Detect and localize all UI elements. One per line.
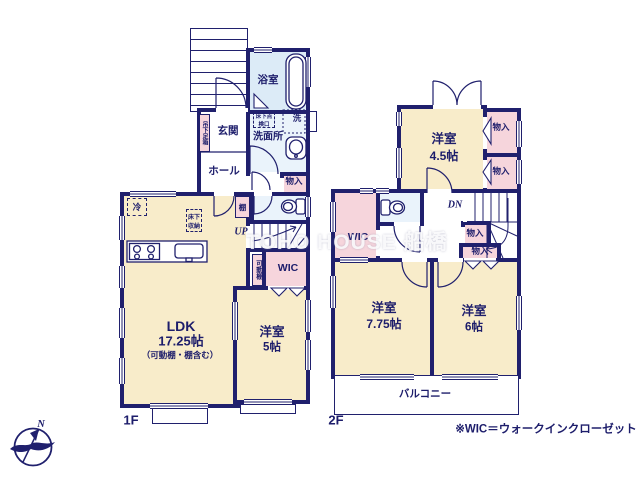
bathtub-inner [289,57,303,106]
compass-icon [10,429,55,466]
label-entrance: 玄関 [218,125,239,137]
closet-b-door-icon [483,160,491,184]
label-ldk-name: LDK [167,318,196,334]
entrance-door-arc [216,78,246,108]
label-wic-note: ※WIC＝ウォークインクローゼット [455,423,637,436]
label-balcony: バルコニー [399,388,451,400]
label-floor-2f: 2F [328,414,343,429]
label-ldk-note: （可動棚・棚含む） [142,351,219,361]
bedroom45-door-arc [427,168,452,193]
label-bedroom6-name: 洋室 [461,304,486,318]
label-bedroom775-name: 洋室 [371,301,396,315]
bath-door-icon [254,94,268,108]
watermark: TOHO HOUSE 船橋 [246,226,448,256]
compass-bird [10,442,55,452]
label-bath: 浴室 [258,74,279,86]
kitchen-tap-icon [186,258,192,262]
label-closet-b: 物入 [492,167,509,177]
closet-a-door-icon [483,118,491,144]
double-door-arcs [433,81,481,105]
label-bedroom45-size: 4.5帖 [430,150,459,164]
label-dn: DN [448,199,462,211]
washbasin-bowl [290,140,303,154]
floor-plan: 吊下足箱 棚 可動棚 冷 床下収納 床下点検口 [0,0,640,480]
label-floor-1f: 1F [123,414,138,429]
toilet-2f-icon [381,200,390,215]
bedroom775-door-arc [402,262,427,287]
washbasin-tap [295,155,298,158]
bedroom6-door-arc [438,262,463,287]
label-washer: 洗 [293,114,302,124]
label-bedroom5-size: 5帖 [263,341,281,354]
label-ldk-size: 17.25帖 [158,335,204,350]
closet-low-door-icon [465,261,481,269]
label-hall: ホール [208,165,240,177]
toilet-1f-icon [296,199,305,214]
label-bedroom6-size: 6帖 [465,321,483,334]
washroom-door-arc [250,146,278,174]
label-wic-1f: WIC [278,262,298,274]
label-bedroom5-name: 洋室 [259,325,284,339]
wic1f-door-icon [289,288,305,296]
closet-low-door-icon [483,261,499,269]
ldk-door-arc [214,196,234,216]
label-washroom: 洗面所 [253,131,283,143]
toilet1f-door-arc [254,196,272,214]
label-closet-mid: 物入 [466,229,483,239]
label-bedroom775-size: 7.75帖 [366,318,401,332]
label-compass-n: N [37,419,45,431]
label-closet-low: 物入 [471,247,488,257]
kitchen-sink-icon [175,244,203,258]
label-closet-a: 物入 [492,123,509,133]
wic1f-door-icon [271,288,287,296]
label-bedroom45-name: 洋室 [431,132,456,146]
label-closet-1f: 物入 [285,177,302,187]
hall-door-arc [252,172,270,190]
